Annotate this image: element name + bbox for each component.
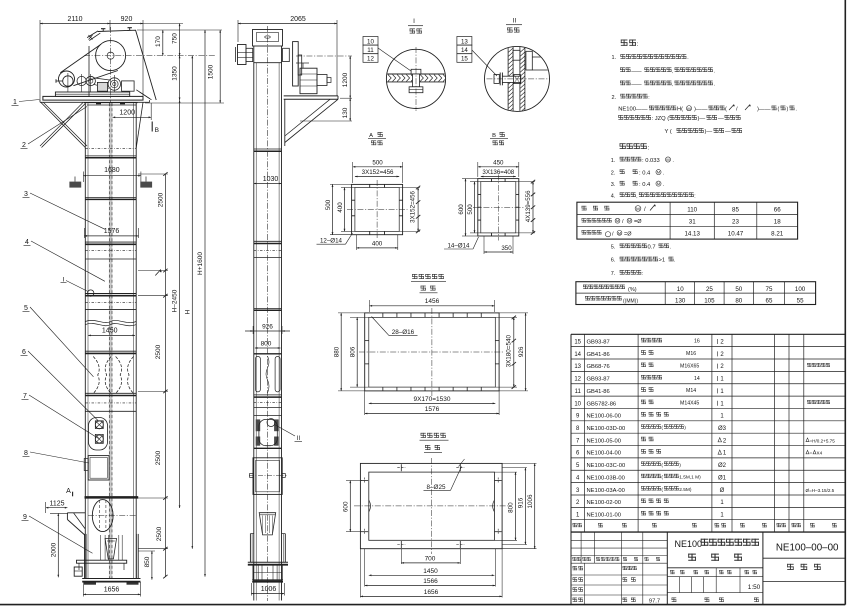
svg-text:A: A [369, 133, 373, 139]
svg-text:16: 16 [694, 339, 700, 345]
svg-text:170: 170 [155, 36, 162, 47]
svg-text:9X170=1530: 9X170=1530 [413, 396, 450, 403]
svg-text:2: 2 [22, 142, 26, 149]
svg-text:.: . [673, 158, 674, 164]
svg-text:Ø3: Ø3 [718, 426, 727, 432]
svg-text:,: , [672, 68, 673, 73]
svg-text:,: , [636, 193, 637, 198]
svg-text:GB93-87: GB93-87 [587, 377, 610, 383]
svg-text:1.: 1. [612, 55, 617, 61]
svg-text:2500: 2500 [155, 344, 162, 359]
svg-text:28–Ø16: 28–Ø16 [392, 329, 415, 336]
svg-text:400: 400 [372, 240, 383, 247]
svg-text:(: ( [725, 107, 727, 113]
svg-text:1006: 1006 [261, 586, 277, 593]
svg-text:NE100——: NE100—— [618, 107, 648, 113]
svg-text:=: = [810, 451, 813, 456]
svg-text:3X180=540: 3X180=540 [506, 335, 513, 368]
svg-text:NE100–00–00: NE100–00–00 [776, 543, 839, 554]
svg-text:10: 10 [367, 38, 374, 45]
svg-text:.: . [796, 107, 797, 113]
svg-text:GB68-76: GB68-76 [587, 364, 610, 370]
svg-text:A: A [66, 488, 71, 495]
svg-text:II: II [297, 436, 301, 442]
svg-text:NE100-03D-00: NE100-03D-00 [587, 426, 626, 432]
svg-text:3X152=456: 3X152=456 [362, 169, 394, 176]
svg-text:12–Ø14: 12–Ø14 [320, 238, 343, 245]
svg-text:=H/0.2+5.75: =H/0.2+5.75 [810, 438, 836, 443]
svg-text:M16X65: M16X65 [680, 363, 699, 369]
svg-text:1: 1 [13, 99, 17, 106]
svg-text:7: 7 [23, 393, 27, 400]
svg-text:II: II [513, 18, 517, 25]
svg-text:5.: 5. [611, 245, 616, 251]
svg-text:105: 105 [704, 297, 715, 304]
svg-text:I: I [413, 18, 415, 25]
svg-text:Y (: Y ( [665, 129, 672, 135]
svg-text:7.: 7. [611, 271, 616, 277]
svg-text:0.7: 0.7 [648, 245, 656, 251]
svg-text:880: 880 [333, 346, 340, 357]
svg-text:1006: 1006 [527, 494, 534, 509]
svg-text:1350: 1350 [172, 66, 179, 81]
svg-text:1576: 1576 [425, 406, 440, 413]
svg-text::: : [648, 95, 649, 101]
svg-text:700: 700 [425, 556, 436, 563]
svg-text:Ø1: Ø1 [718, 475, 727, 481]
svg-text:Ø2: Ø2 [718, 463, 727, 469]
svg-text:)—: )— [705, 129, 713, 135]
svg-text:M: M [636, 206, 640, 211]
svg-text:(: ( [778, 107, 780, 113]
svg-text:800: 800 [261, 340, 272, 347]
svg-text:14–Ø14: 14–Ø14 [447, 242, 470, 249]
svg-text:31: 31 [689, 218, 696, 225]
svg-text:H(: H( [677, 107, 683, 113]
svg-text:100: 100 [795, 286, 806, 293]
svg-text:926: 926 [262, 323, 273, 330]
svg-text:NE100-06-00: NE100-06-00 [587, 414, 621, 420]
svg-text:4X139=556: 4X139=556 [525, 190, 532, 222]
svg-text:1566: 1566 [423, 578, 438, 585]
svg-text:NE100-01-00: NE100-01-00 [587, 513, 621, 519]
svg-text:B: B [492, 133, 496, 139]
svg-text:4.: 4. [611, 193, 616, 199]
svg-text:1200: 1200 [119, 110, 135, 117]
svg-text:2500: 2500 [156, 526, 163, 541]
svg-text:8: 8 [24, 450, 28, 457]
svg-text:1500: 1500 [208, 64, 215, 79]
svg-text:15: 15 [461, 56, 468, 63]
svg-text:11: 11 [367, 47, 374, 54]
svg-text:600: 600 [458, 204, 465, 215]
svg-text:10: 10 [574, 401, 581, 407]
svg-text:H: H [184, 309, 191, 314]
svg-text:18: 18 [774, 218, 781, 225]
svg-text:14.13: 14.13 [684, 231, 700, 238]
svg-text:5: 5 [24, 305, 28, 312]
svg-text:1125: 1125 [49, 501, 64, 508]
svg-text:1680: 1680 [104, 167, 120, 174]
svg-text:1450: 1450 [423, 568, 438, 575]
svg-text:M: M [657, 181, 660, 186]
svg-text:2.: 2. [611, 170, 616, 176]
svg-text:8–Ø25: 8–Ø25 [427, 484, 446, 491]
svg-text:2.: 2. [612, 95, 617, 101]
svg-text:130: 130 [675, 297, 686, 304]
svg-text:13: 13 [461, 38, 468, 45]
svg-text:450: 450 [493, 160, 504, 167]
svg-text:M: M [657, 170, 660, 175]
svg-text:NE100-04-00: NE100-04-00 [587, 451, 621, 457]
svg-text:6: 6 [22, 349, 26, 356]
svg-text:2065: 2065 [290, 16, 306, 23]
svg-text:GB93-87: GB93-87 [587, 339, 610, 345]
svg-text:12: 12 [574, 377, 581, 383]
svg-text:(%): (%) [628, 287, 637, 293]
svg-text:.: . [663, 170, 664, 176]
svg-text:.: . [714, 68, 715, 74]
svg-text:.: . [714, 82, 715, 88]
svg-text:——: —— [631, 68, 642, 74]
svg-text:M: M [618, 231, 621, 235]
svg-text:800: 800 [508, 502, 515, 513]
svg-text:500: 500 [325, 199, 332, 210]
svg-text:926: 926 [518, 346, 525, 357]
svg-text:75: 75 [766, 286, 773, 293]
svg-text:8.21: 8.21 [771, 231, 784, 238]
svg-text:M14: M14 [686, 388, 696, 394]
svg-text:: JZQ (: : JZQ ( [652, 116, 670, 122]
svg-text:GB41-86: GB41-86 [587, 352, 610, 358]
svg-text:3X136=408: 3X136=408 [482, 169, 514, 176]
svg-text:((MM)): ((MM)) [623, 298, 638, 304]
svg-text:916: 916 [518, 497, 525, 508]
svg-text:3.: 3. [611, 182, 616, 188]
svg-text:97.7: 97.7 [649, 598, 660, 604]
svg-text:130: 130 [342, 107, 349, 118]
svg-text:)—: )— [698, 116, 706, 122]
svg-text:GB5782-86: GB5782-86 [587, 401, 617, 407]
svg-text:NE100-02-00: NE100-02-00 [587, 500, 621, 506]
svg-text:M: M [687, 106, 690, 111]
svg-text:X4: X4 [817, 451, 823, 456]
svg-text:: 0.4: : 0.4 [639, 182, 651, 188]
svg-text:2.5M): 2.5M) [679, 487, 692, 493]
svg-text:400: 400 [337, 202, 344, 213]
svg-text:.: . [663, 182, 664, 188]
svg-text:1576: 1576 [104, 228, 120, 235]
svg-text:12: 12 [367, 56, 374, 63]
svg-text:500: 500 [372, 160, 383, 167]
svg-text:M14X45: M14X45 [680, 401, 699, 407]
svg-text:14: 14 [694, 376, 700, 382]
svg-text:2000: 2000 [50, 542, 57, 557]
svg-text:9: 9 [23, 514, 27, 521]
svg-text:H+1600: H+1600 [197, 252, 204, 275]
svg-text:H–2450: H–2450 [172, 289, 179, 312]
svg-text:23: 23 [732, 218, 739, 225]
svg-text:11: 11 [575, 389, 582, 395]
svg-text:)——: )—— [757, 107, 771, 113]
svg-text:1200: 1200 [342, 72, 349, 87]
svg-text:=Ø: =Ø [634, 219, 642, 225]
svg-text:1.5M,1 M): 1.5M,1 M) [679, 475, 701, 481]
svg-text:Ø: Ø [720, 488, 725, 494]
svg-text:——: —— [631, 82, 642, 88]
svg-text:—: — [725, 129, 731, 135]
svg-text:NE100-03A-00: NE100-03A-00 [587, 488, 625, 494]
svg-text:2110: 2110 [67, 16, 82, 23]
svg-text:4: 4 [25, 239, 29, 246]
svg-text:1450: 1450 [102, 328, 118, 335]
svg-text::: : [637, 41, 639, 48]
svg-text:B: B [155, 127, 159, 134]
svg-text:): ) [787, 107, 789, 113]
svg-text:NE100: NE100 [675, 539, 703, 549]
svg-text:350: 350 [501, 245, 512, 252]
svg-text:25: 25 [706, 286, 713, 293]
svg-text:50: 50 [735, 286, 742, 293]
svg-text:10.47: 10.47 [728, 231, 744, 238]
svg-text:1:50: 1:50 [748, 584, 761, 591]
svg-text:750: 750 [172, 33, 179, 44]
svg-text:.: . [674, 258, 675, 264]
svg-text:: 0.4: : 0.4 [639, 170, 651, 176]
svg-text:850: 850 [144, 556, 151, 567]
svg-text:.: . [670, 245, 671, 251]
svg-text:=Ø: =Ø [624, 231, 632, 237]
svg-text:1656: 1656 [424, 589, 439, 596]
svg-text:85: 85 [732, 206, 739, 213]
svg-text:55: 55 [797, 297, 804, 304]
svg-text:1656: 1656 [104, 587, 120, 594]
svg-text:10: 10 [677, 286, 684, 293]
svg-text:: 0.033: : 0.033 [642, 158, 660, 164]
svg-text:920: 920 [121, 16, 133, 23]
svg-text:M: M [628, 219, 631, 223]
svg-text:M: M [666, 157, 669, 162]
svg-text:NE100-05-00: NE100-05-00 [587, 438, 621, 444]
svg-text:NE100-03C-00: NE100-03C-00 [587, 463, 626, 469]
svg-text:,: , [672, 82, 673, 87]
svg-text:66: 66 [774, 206, 781, 213]
svg-text:M: M [616, 219, 619, 223]
svg-text:)——: )—— [694, 107, 708, 113]
svg-text:65: 65 [766, 297, 773, 304]
svg-text:2500: 2500 [155, 450, 162, 465]
svg-text:3: 3 [24, 191, 28, 198]
svg-text:600: 600 [343, 501, 350, 512]
svg-text:110: 110 [687, 206, 697, 213]
svg-text:13: 13 [574, 364, 581, 370]
svg-text:3X152=456: 3X152=456 [410, 190, 417, 222]
svg-text:>1: >1 [659, 258, 666, 264]
svg-text:14: 14 [461, 47, 468, 54]
svg-text:1456: 1456 [425, 298, 440, 305]
svg-text::: : [642, 271, 643, 277]
svg-text:Ø=H–3.15/2.5: Ø=H–3.15/2.5 [806, 488, 835, 493]
svg-text:—: — [718, 116, 724, 122]
svg-text:2500: 2500 [157, 192, 164, 207]
svg-text:6.: 6. [611, 258, 616, 264]
svg-text:GB41-86: GB41-86 [587, 389, 610, 395]
svg-text:14: 14 [574, 352, 581, 358]
svg-text:.: . [687, 55, 688, 61]
svg-text:806: 806 [349, 346, 356, 357]
svg-text:M16: M16 [686, 351, 696, 357]
svg-text:1030: 1030 [263, 176, 279, 183]
svg-text:NE100-03B-00: NE100-03B-00 [587, 475, 625, 481]
svg-text:80: 80 [735, 297, 742, 304]
svg-text::: : [694, 193, 695, 199]
svg-text:1.: 1. [611, 158, 616, 164]
svg-text:15: 15 [574, 339, 581, 345]
svg-text:500: 500 [467, 204, 474, 215]
